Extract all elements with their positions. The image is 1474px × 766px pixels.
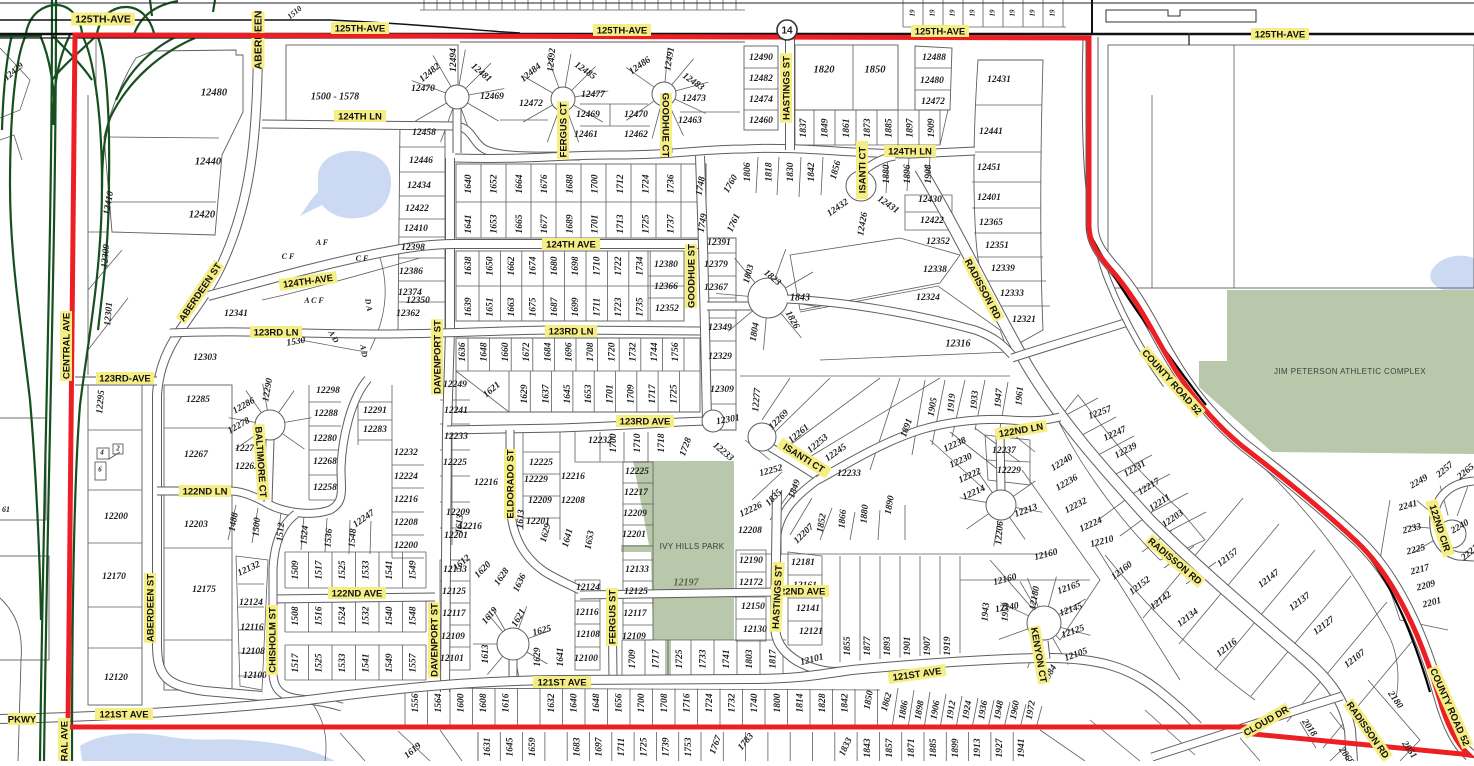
svg-text:12225: 12225: [443, 458, 467, 468]
svg-text:2: 2: [115, 445, 120, 453]
svg-text:1830: 1830: [786, 162, 796, 181]
svg-text:12309: 12309: [100, 244, 112, 269]
svg-text:19: 19: [989, 9, 997, 17]
svg-text:1885: 1885: [929, 738, 939, 757]
svg-text:12150: 12150: [741, 602, 765, 612]
svg-text:1532: 1532: [362, 606, 372, 625]
svg-text:12480: 12480: [201, 87, 228, 98]
svg-text:1843: 1843: [790, 292, 810, 303]
svg-text:FERGUS ST: FERGUS ST: [607, 590, 618, 645]
svg-text:1653: 1653: [489, 214, 499, 233]
svg-text:12216: 12216: [561, 472, 585, 482]
svg-text:19: 19: [1009, 9, 1017, 17]
svg-text:1717: 1717: [648, 383, 658, 403]
svg-text:1722: 1722: [614, 256, 624, 275]
svg-text:12109: 12109: [441, 632, 465, 642]
svg-text:12125: 12125: [442, 587, 466, 597]
svg-text:12366: 12366: [654, 282, 678, 292]
svg-text:12200: 12200: [394, 541, 418, 551]
svg-text:12470: 12470: [624, 110, 648, 120]
svg-text:12108: 12108: [241, 647, 265, 657]
svg-text:1699: 1699: [571, 297, 581, 316]
svg-text:1740: 1740: [750, 693, 760, 712]
svg-text:PKWY: PKWY: [8, 714, 37, 725]
svg-text:1927: 1927: [995, 737, 1005, 757]
svg-text:12241: 12241: [444, 406, 468, 416]
svg-text:12130: 12130: [743, 625, 767, 635]
svg-text:12268: 12268: [313, 457, 337, 467]
svg-text:12391: 12391: [707, 238, 731, 248]
svg-text:GOODHUE ST: GOODHUE ST: [686, 244, 697, 308]
svg-text:12109: 12109: [622, 632, 646, 642]
svg-text:19: 19: [929, 9, 937, 17]
svg-text:C F: C F: [282, 252, 295, 261]
svg-text:12380: 12380: [654, 260, 678, 270]
svg-text:6: 6: [98, 466, 102, 474]
svg-text:19: 19: [969, 9, 977, 17]
svg-text:12208: 12208: [394, 518, 418, 528]
svg-text:12434: 12434: [407, 181, 431, 191]
svg-text:1533: 1533: [362, 560, 372, 579]
svg-text:1700: 1700: [637, 693, 647, 712]
svg-text:12229: 12229: [997, 466, 1021, 476]
svg-text:1600: 1600: [456, 693, 466, 712]
svg-text:12216: 12216: [474, 478, 498, 488]
svg-text:12100: 12100: [574, 654, 598, 664]
svg-text:12333: 12333: [1000, 289, 1024, 299]
svg-text:1893: 1893: [883, 636, 893, 655]
svg-text:1687: 1687: [550, 296, 560, 316]
svg-text:HASTINGS ST: HASTINGS ST: [781, 56, 792, 120]
svg-text:CHISHOLM ST: CHISHOLM ST: [267, 607, 278, 673]
svg-text:12209: 12209: [528, 496, 552, 506]
svg-text:1843: 1843: [863, 738, 873, 757]
svg-text:1517: 1517: [291, 652, 301, 672]
svg-text:124TH AVE: 124TH AVE: [546, 239, 596, 250]
svg-text:12116: 12116: [575, 608, 598, 618]
svg-text:1509: 1509: [291, 560, 301, 579]
svg-text:12237: 12237: [992, 446, 1017, 456]
svg-text:1700: 1700: [591, 174, 601, 193]
svg-text:1800: 1800: [773, 693, 783, 712]
svg-text:12120: 12120: [104, 673, 128, 683]
svg-text:12101: 12101: [440, 654, 464, 664]
svg-text:12291: 12291: [363, 406, 387, 416]
svg-text:1712: 1712: [616, 174, 626, 193]
svg-text:1616: 1616: [502, 693, 512, 712]
svg-text:12422: 12422: [405, 204, 429, 214]
svg-text:ABERDEEN: ABERDEEN: [253, 11, 265, 70]
svg-text:1753: 1753: [684, 737, 694, 756]
svg-text:ELDORADO ST: ELDORADO ST: [505, 449, 516, 518]
svg-text:1871: 1871: [907, 739, 917, 758]
svg-text:1700: 1700: [609, 433, 619, 452]
svg-text:19: 19: [1029, 9, 1037, 17]
svg-text:12422: 12422: [920, 216, 944, 226]
svg-text:12209: 12209: [623, 509, 647, 519]
svg-text:JIM PETERSON ATHLETIC COMPLEX: JIM PETERSON ATHLETIC COMPLEX: [1274, 367, 1426, 376]
svg-text:12469: 12469: [576, 110, 600, 120]
svg-text:12410: 12410: [404, 224, 428, 234]
svg-text:1725: 1725: [641, 214, 651, 233]
svg-text:12175: 12175: [192, 585, 216, 595]
svg-text:125TH-AVE: 125TH-AVE: [915, 26, 966, 37]
svg-text:12441: 12441: [979, 127, 1003, 137]
svg-text:1909: 1909: [927, 118, 937, 137]
svg-text:1540: 1540: [385, 606, 395, 625]
svg-text:123RD-AVE: 123RD-AVE: [99, 373, 151, 384]
svg-text:1733: 1733: [698, 649, 708, 668]
svg-text:1849: 1849: [820, 118, 830, 137]
svg-text:12339: 12339: [991, 264, 1015, 274]
svg-text:1709: 1709: [627, 384, 637, 403]
svg-text:12181: 12181: [791, 558, 815, 568]
svg-text:A F: A F: [315, 238, 329, 247]
svg-text:12316: 12316: [946, 338, 971, 349]
svg-text:1708: 1708: [586, 342, 596, 361]
svg-text:12108: 12108: [576, 630, 600, 640]
svg-text:12100: 12100: [243, 671, 267, 681]
svg-text:1919: 1919: [946, 393, 958, 413]
svg-text:1744: 1744: [650, 342, 660, 361]
svg-text:12117: 12117: [623, 609, 647, 619]
svg-text:IVY HILLS PARK: IVY HILLS PARK: [660, 542, 725, 551]
svg-text:1536: 1536: [323, 528, 335, 548]
svg-text:1817: 1817: [769, 648, 779, 668]
svg-text:1549: 1549: [409, 560, 419, 579]
svg-text:12463: 12463: [678, 116, 702, 126]
svg-text:1524: 1524: [299, 525, 311, 545]
svg-text:1524: 1524: [338, 606, 348, 625]
svg-text:12267: 12267: [184, 450, 209, 460]
svg-text:1648: 1648: [592, 693, 602, 712]
svg-text:1525: 1525: [315, 653, 325, 672]
svg-text:12206: 12206: [994, 521, 1006, 546]
svg-text:12190: 12190: [739, 556, 763, 566]
svg-text:1756: 1756: [671, 342, 681, 361]
svg-text:123RD LN: 123RD LN: [549, 326, 594, 337]
svg-text:1613: 1613: [481, 644, 491, 663]
svg-text:1741: 1741: [722, 650, 732, 669]
svg-text:1713: 1713: [616, 214, 626, 233]
svg-text:CENTRAL AVE: CENTRAL AVE: [61, 313, 72, 379]
svg-text:1897: 1897: [906, 117, 916, 137]
svg-text:1636: 1636: [458, 342, 468, 361]
svg-text:12351: 12351: [985, 241, 1009, 251]
svg-text:12477: 12477: [581, 90, 606, 100]
svg-text:1711: 1711: [593, 298, 603, 316]
svg-text:1637: 1637: [541, 383, 551, 403]
svg-text:12258: 12258: [313, 483, 337, 493]
svg-text:4: 4: [99, 449, 104, 457]
svg-text:1959: 1959: [1000, 602, 1012, 622]
svg-text:1732: 1732: [728, 693, 738, 712]
svg-text:1676: 1676: [540, 174, 550, 193]
svg-text:1877: 1877: [863, 635, 873, 655]
svg-text:1866: 1866: [837, 509, 849, 529]
svg-text:1652: 1652: [489, 174, 499, 193]
svg-text:1608: 1608: [479, 693, 489, 712]
svg-text:12280: 12280: [313, 434, 337, 444]
svg-text:1541: 1541: [362, 654, 372, 673]
svg-text:12474: 12474: [749, 95, 773, 105]
svg-text:1665: 1665: [515, 214, 525, 233]
svg-text:14: 14: [781, 26, 793, 37]
svg-text:12338: 12338: [923, 265, 947, 275]
svg-text:12124: 12124: [576, 583, 600, 593]
svg-text:12431: 12431: [987, 75, 1011, 85]
svg-text:12232: 12232: [394, 448, 418, 458]
svg-text:12470: 12470: [411, 84, 435, 94]
svg-text:12480: 12480: [920, 76, 944, 86]
svg-text:12298: 12298: [316, 386, 340, 396]
svg-text:1855: 1855: [843, 636, 853, 655]
svg-text:1525: 1525: [338, 560, 348, 579]
svg-text:12229: 12229: [524, 475, 548, 485]
svg-text:12233: 12233: [444, 432, 468, 442]
svg-text:1674: 1674: [528, 256, 538, 275]
svg-text:12462: 12462: [624, 130, 648, 140]
svg-text:ISANTI CT: ISANTI CT: [857, 147, 868, 194]
svg-text:1533: 1533: [338, 653, 348, 672]
svg-text:1814: 1814: [795, 693, 805, 712]
svg-text:12233: 12233: [837, 469, 861, 479]
svg-text:121ST AVE: 121ST AVE: [537, 677, 586, 688]
svg-text:12401: 12401: [977, 193, 1001, 203]
svg-text:121ST AVE: 121ST AVE: [99, 709, 148, 720]
svg-text:A C F: A C F: [303, 296, 324, 305]
svg-text:125TH-AVE: 125TH-AVE: [1255, 29, 1306, 40]
svg-text:12458: 12458: [412, 128, 436, 138]
svg-text:1806: 1806: [743, 162, 753, 181]
svg-text:1725: 1725: [639, 737, 649, 756]
svg-text:1640: 1640: [569, 693, 579, 712]
svg-text:1734: 1734: [635, 256, 645, 275]
svg-text:12446: 12446: [409, 156, 433, 166]
svg-text:12352: 12352: [655, 304, 679, 314]
svg-text:1907: 1907: [923, 635, 933, 655]
svg-text:1680: 1680: [550, 256, 560, 275]
svg-text:1857: 1857: [885, 737, 895, 757]
svg-text:1516: 1516: [315, 606, 325, 625]
svg-text:1548: 1548: [409, 606, 419, 625]
svg-text:1709: 1709: [628, 649, 638, 668]
svg-text:1684: 1684: [543, 342, 553, 361]
svg-text:1739: 1739: [662, 737, 672, 756]
svg-text:1648: 1648: [479, 342, 489, 361]
svg-text:12482: 12482: [749, 74, 773, 84]
svg-text:12201: 12201: [622, 530, 646, 540]
svg-text:12430: 12430: [918, 195, 942, 205]
svg-text:1941: 1941: [1017, 739, 1027, 758]
svg-text:1541: 1541: [385, 561, 395, 580]
svg-text:12379: 12379: [704, 260, 728, 270]
svg-text:1837: 1837: [799, 117, 809, 137]
svg-text:12249: 12249: [443, 380, 467, 390]
svg-text:1725: 1725: [675, 649, 685, 668]
svg-text:12208: 12208: [738, 526, 762, 536]
svg-text:1689: 1689: [565, 214, 575, 233]
svg-text:1613: 1613: [515, 509, 527, 529]
svg-text:19: 19: [1049, 9, 1057, 17]
svg-text:1842: 1842: [807, 162, 817, 181]
svg-text:ABERDEEN ST: ABERDEEN ST: [145, 574, 156, 642]
svg-text:124TH LN: 124TH LN: [888, 146, 932, 157]
svg-text:1873: 1873: [863, 118, 873, 137]
svg-text:125TH-AVE: 125TH-AVE: [597, 25, 648, 36]
svg-text:125TH-AVE: 125TH-AVE: [75, 14, 131, 26]
svg-text:1629: 1629: [520, 384, 530, 403]
svg-text:12141: 12141: [796, 604, 820, 614]
svg-text:12362: 12362: [396, 309, 420, 319]
svg-text:1861: 1861: [842, 119, 852, 138]
svg-text:1885: 1885: [884, 118, 894, 137]
svg-text:12133: 12133: [443, 565, 467, 575]
svg-text:12309: 12309: [710, 385, 734, 395]
svg-text:12386: 12386: [399, 267, 423, 277]
svg-text:1639: 1639: [464, 297, 474, 316]
svg-text:C F: C F: [356, 254, 369, 263]
svg-text:1659: 1659: [528, 737, 538, 756]
svg-text:12288: 12288: [314, 409, 338, 419]
svg-text:12324: 12324: [916, 293, 940, 303]
svg-text:12321: 12321: [1012, 315, 1036, 325]
svg-text:1697: 1697: [595, 736, 605, 756]
svg-text:12472: 12472: [921, 97, 945, 107]
svg-text:1717: 1717: [652, 648, 662, 668]
svg-text:12125: 12125: [624, 587, 648, 597]
svg-text:12472: 12472: [519, 99, 543, 109]
svg-text:1629: 1629: [533, 647, 543, 666]
svg-text:12473: 12473: [682, 94, 706, 104]
svg-text:1683: 1683: [572, 737, 582, 756]
svg-text:1650: 1650: [486, 256, 496, 275]
svg-text:12283: 12283: [363, 425, 387, 435]
svg-text:1880: 1880: [859, 504, 871, 524]
svg-text:12121: 12121: [799, 627, 823, 637]
svg-text:1919: 1919: [943, 636, 953, 655]
svg-text:1736: 1736: [667, 174, 677, 193]
svg-text:12208: 12208: [561, 496, 585, 506]
svg-text:DAVENPORT ST: DAVENPORT ST: [432, 320, 443, 394]
svg-text:1913: 1913: [973, 738, 983, 757]
svg-text:1850: 1850: [865, 64, 887, 75]
svg-text:1656: 1656: [615, 693, 625, 712]
svg-text:12352: 12352: [926, 237, 950, 247]
svg-text:1675: 1675: [528, 297, 538, 316]
svg-text:12490: 12490: [749, 53, 773, 63]
svg-text:12124: 12124: [239, 598, 263, 608]
svg-text:124TH LN: 124TH LN: [338, 111, 382, 122]
svg-text:12451: 12451: [977, 163, 1001, 173]
svg-text:1672: 1672: [522, 342, 532, 361]
svg-text:1725: 1725: [669, 384, 679, 403]
svg-text:1947: 1947: [993, 387, 1005, 408]
svg-text:1701: 1701: [591, 215, 601, 234]
svg-text:1632: 1632: [547, 693, 557, 712]
svg-text:1663: 1663: [507, 297, 517, 316]
svg-text:1645: 1645: [505, 737, 515, 756]
svg-text:1803: 1803: [745, 649, 755, 668]
svg-text:1899: 1899: [951, 738, 961, 757]
svg-text:1631: 1631: [483, 738, 493, 757]
svg-text:12117: 12117: [442, 609, 466, 619]
svg-text:1556: 1556: [411, 693, 421, 712]
svg-text:1718: 1718: [657, 433, 667, 452]
svg-text:12116: 12116: [240, 623, 263, 633]
svg-text:12341: 12341: [224, 309, 248, 319]
svg-text:12200: 12200: [104, 512, 128, 522]
svg-text:1933: 1933: [969, 390, 981, 410]
svg-text:1696: 1696: [565, 342, 575, 361]
svg-text:1724: 1724: [705, 693, 715, 712]
svg-text:12440: 12440: [195, 156, 222, 167]
svg-text:12225: 12225: [529, 458, 553, 468]
svg-text:1720: 1720: [607, 342, 617, 361]
svg-text:1735: 1735: [635, 297, 645, 316]
svg-text:1701: 1701: [605, 385, 615, 404]
svg-text:1818: 1818: [764, 162, 774, 181]
svg-text:12461: 12461: [574, 130, 598, 140]
svg-text:1517: 1517: [315, 559, 325, 579]
svg-text:1908: 1908: [924, 164, 934, 183]
svg-text:123RD AVE: 123RD AVE: [620, 416, 671, 427]
svg-text:1500: 1500: [251, 517, 263, 537]
svg-text:12460: 12460: [749, 116, 773, 126]
svg-text:1645: 1645: [563, 384, 573, 403]
svg-text:1677: 1677: [540, 213, 550, 233]
svg-text:12329: 12329: [708, 352, 732, 362]
svg-text:1961: 1961: [1014, 386, 1026, 406]
svg-text:12492: 12492: [546, 48, 558, 73]
svg-text:12170: 12170: [102, 572, 126, 582]
svg-text:12225: 12225: [625, 467, 649, 477]
svg-text:12494: 12494: [449, 48, 459, 72]
svg-text:122ND AVE: 122ND AVE: [332, 588, 383, 599]
svg-text:12172: 12172: [739, 578, 763, 588]
svg-text:12469: 12469: [480, 92, 504, 102]
svg-text:1737: 1737: [667, 213, 677, 233]
svg-text:1723: 1723: [614, 297, 624, 316]
svg-text:1732: 1732: [629, 342, 639, 361]
svg-text:12285: 12285: [186, 395, 210, 405]
svg-text:1548: 1548: [347, 528, 359, 548]
svg-text:12488: 12488: [922, 53, 946, 63]
svg-text:1500 - 1578: 1500 - 1578: [311, 91, 359, 102]
svg-text:1564: 1564: [434, 693, 444, 712]
svg-text:12133: 12133: [625, 565, 649, 575]
svg-text:1549: 1549: [385, 653, 395, 672]
svg-text:12301: 12301: [103, 302, 115, 327]
svg-text:1688: 1688: [565, 174, 575, 193]
svg-text:19: 19: [949, 9, 957, 17]
svg-text:1641: 1641: [556, 648, 566, 667]
svg-text:19: 19: [909, 9, 917, 17]
svg-text:125TH-AVE: 125TH-AVE: [335, 23, 386, 34]
svg-text:1896: 1896: [903, 164, 913, 183]
svg-text:1651: 1651: [486, 298, 496, 317]
svg-text:1828: 1828: [818, 693, 828, 712]
svg-text:1557: 1557: [409, 652, 419, 672]
svg-text:61: 61: [2, 505, 10, 514]
svg-text:1716: 1716: [682, 693, 692, 712]
svg-text:1710: 1710: [593, 256, 603, 275]
svg-text:1638: 1638: [464, 256, 474, 275]
svg-text:1708: 1708: [660, 693, 670, 712]
svg-text:12197: 12197: [674, 577, 700, 588]
svg-text:123RD LN: 123RD LN: [254, 327, 299, 338]
svg-text:12303: 12303: [193, 353, 217, 363]
